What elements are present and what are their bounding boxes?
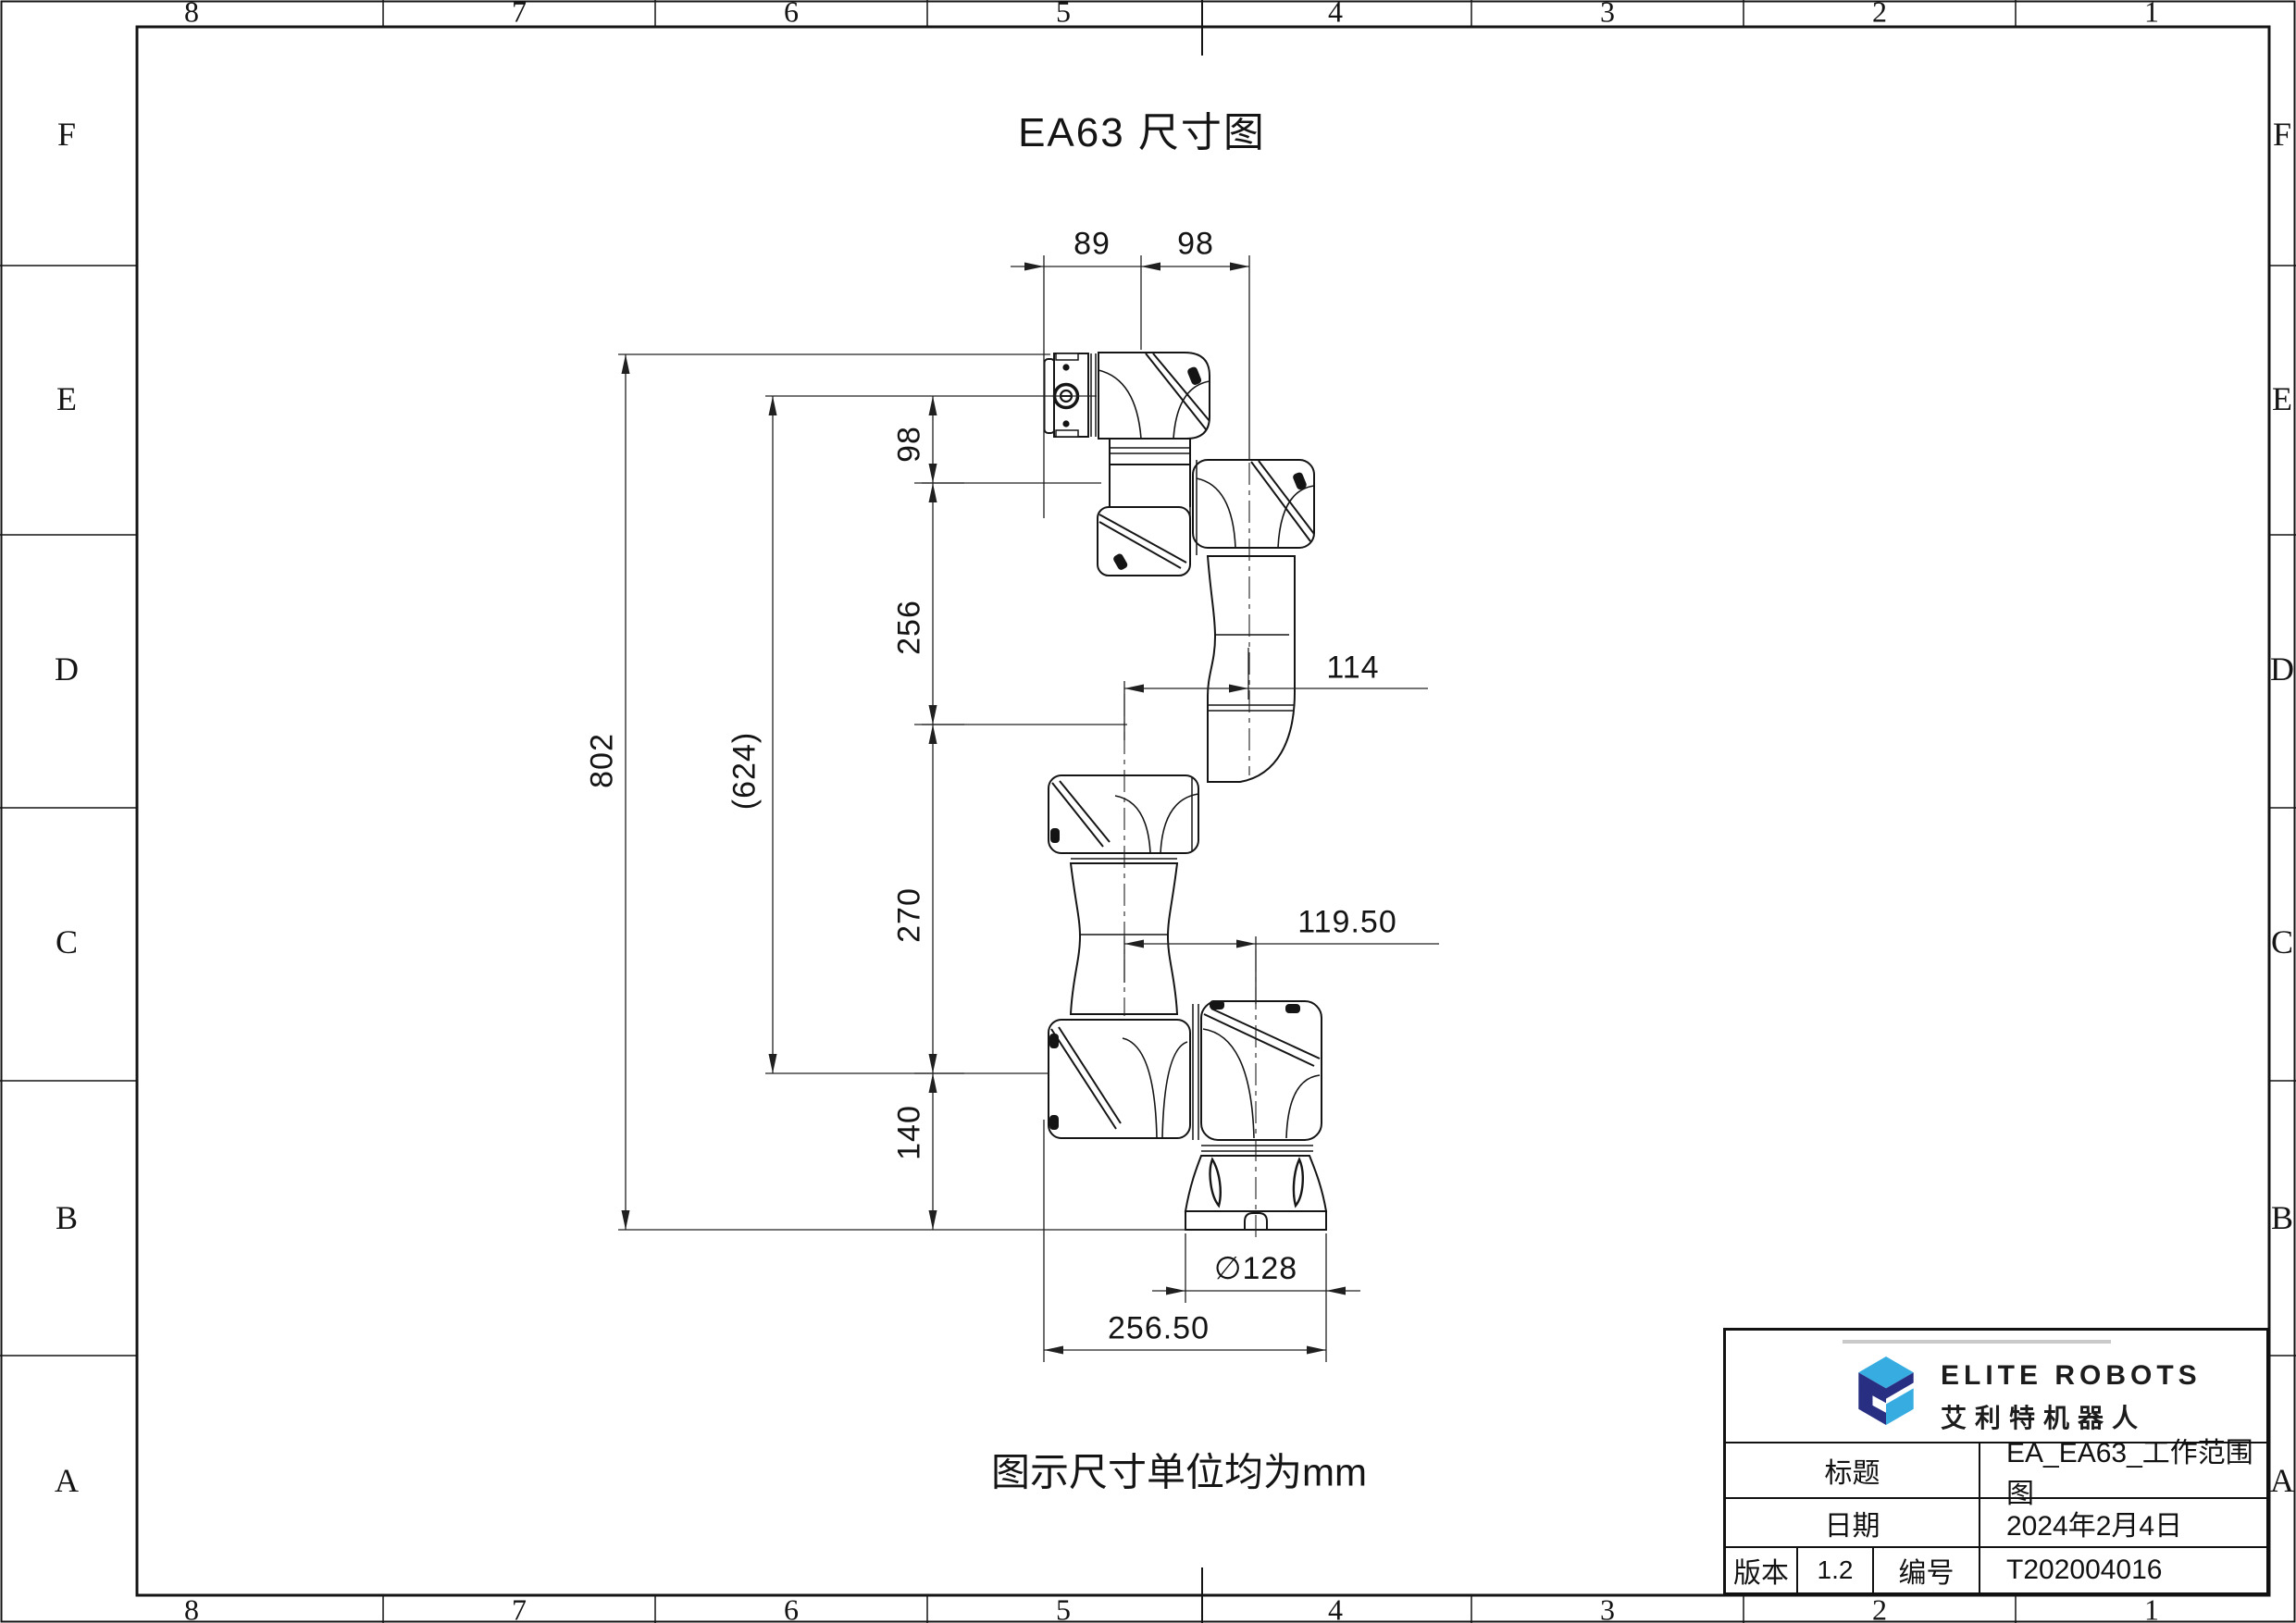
grid-row-left: D [55,650,79,688]
grid-col-bottom: 3 [1600,1593,1615,1623]
grid-row-right: B [2271,1198,2293,1237]
dim-256: 256 [892,600,928,655]
title-label: 标题 [1726,1443,1980,1497]
grid-col-bottom: 4 [1328,1593,1343,1623]
grid-col-top: 6 [784,0,799,30]
grid-col-bottom: 5 [1056,1593,1071,1623]
version-label: 版本 [1726,1548,1798,1592]
title-value: EA_EA63_工作范围图 [1980,1443,2266,1497]
elbow-block [1049,775,1198,853]
grid-col-bottom: 7 [512,1593,527,1623]
grid-col-top: 4 [1328,0,1343,30]
grid-col-bottom: 1 [2144,1593,2159,1623]
grid-col-top: 1 [2144,0,2159,30]
dim-89: 89 [1074,227,1111,263]
version-value: 1.2 [1798,1548,1874,1592]
logo-cell: ELITE ROBOTS 艾利特机器人 [1726,1331,2266,1443]
dim-114: 114 [1326,650,1379,687]
connector-mark [1286,1005,1299,1012]
dim-98-top: 98 [1177,227,1214,263]
dim-802: 802 [585,733,621,788]
grid-row-right: A [2270,1461,2294,1500]
title-row: 标题 EA_EA63_工作范围图 [1726,1443,2266,1499]
code-label: 编号 [1874,1548,1980,1592]
dim-dia-128: ∅128 [1214,1250,1297,1287]
grid-row-right: C [2271,923,2293,961]
dim-98: 98 [892,426,928,463]
connector-mark [1210,1001,1223,1009]
elite-robots-logo-icon [1855,1355,1917,1427]
grid-row-right: E [2272,379,2292,418]
grid-row-left: E [56,379,77,418]
grid-row-right: F [2273,115,2291,154]
date-label: 日期 [1726,1499,1980,1546]
grid-col-top: 5 [1056,0,1071,30]
dim-270: 270 [892,887,928,943]
dim-119-50: 119.50 [1297,905,1396,941]
brand-name-cn: 艾利特机器人 [1941,1398,2202,1435]
robot-arm [1045,353,1327,1230]
grid-row-left: F [57,115,76,154]
grid-col-bottom: 6 [784,1593,799,1623]
brand-name-en: ELITE ROBOTS [1941,1360,2202,1392]
code-value: T202004016 [1980,1548,2266,1592]
connector-mark [1050,1035,1058,1047]
wrist2-block [1193,460,1314,548]
grid-col-top: 3 [1600,0,1615,30]
drawing-title: EA63 尺寸图 [1018,99,1266,158]
forearm [1208,556,1295,782]
grid-row-left: A [55,1461,79,1500]
grid-row-left: C [56,923,78,961]
grid-row-left: B [56,1198,78,1237]
logo-divider [1843,1340,2111,1344]
connector-mark [1051,829,1059,842]
grid-col-top: 2 [1872,0,1887,30]
grid-col-top: 7 [512,0,527,30]
date-value: 2024年2月4日 [1980,1499,2266,1546]
dim-256-50: 256.50 [1108,1311,1210,1347]
grid-col-bottom: 2 [1872,1593,1887,1623]
grid-row-right: D [2270,650,2294,688]
drawing-sheet: EA63 尺寸图 图示尺寸单位均为mm 89 98 98 256 802 (62… [0,0,2296,1623]
grid-col-top: 8 [184,0,199,30]
date-row: 日期 2024年2月4日 [1726,1499,2266,1548]
version-row: 版本 1.2 编号 T202004016 [1726,1548,2266,1592]
connector-mark [1050,1116,1058,1129]
unit-note: 图示尺寸单位均为mm [991,1442,1367,1498]
grid-col-bottom: 8 [184,1593,199,1623]
dim-624: (624) [727,732,763,810]
title-block: ELITE ROBOTS 艾利特机器人 标题 EA_EA63_工作范围图 日期 … [1723,1328,2269,1595]
dim-140: 140 [892,1105,928,1160]
